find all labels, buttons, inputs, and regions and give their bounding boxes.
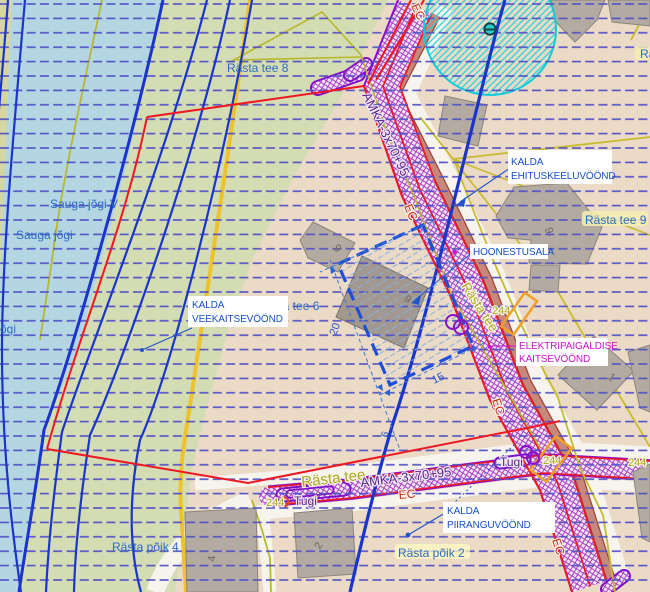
svg-text:HOONESTUSALA: HOONESTUSALA (473, 247, 554, 258)
svg-text:ELEKTRIPAIGALDISE: ELEKTRIPAIGALDISE (519, 341, 618, 352)
svg-text:PIIRANGUVÖÖND: PIIRANGUVÖÖND (447, 519, 531, 531)
svg-text:EHITUSKEELUVÖÖND: EHITUSKEELUVÖÖND (511, 170, 616, 182)
svg-text:Sauga jõgi V: Sauga jõgi V (50, 197, 118, 211)
svg-text:õgi: õgi (0, 322, 16, 336)
svg-text:KALDA: KALDA (192, 300, 225, 311)
svg-text:KALDA: KALDA (511, 157, 544, 168)
svg-text:KALDA: KALDA (447, 506, 480, 517)
svg-text:Rä: Rä (640, 47, 650, 61)
svg-text:Rästa tee 9: Rästa tee 9 (585, 213, 647, 227)
svg-text:244: 244 (266, 497, 284, 509)
svg-text:KAITSEVÖÖND: KAITSEVÖÖND (519, 353, 590, 365)
svg-text:EC: EC (398, 487, 416, 502)
svg-text:Rästa põik 2: Rästa põik 2 (398, 546, 465, 560)
svg-text:Sauga jõgi: Sauga jõgi (16, 228, 73, 242)
svg-text:9·: 9· (542, 226, 556, 238)
svg-text:Tugi: Tugi (500, 455, 523, 469)
svg-text:VEEKAITSEVÖÖND: VEEKAITSEVÖÖND (192, 313, 283, 325)
svg-text:Rästa põik 4: Rästa põik 4 (112, 540, 179, 554)
svg-text:244: 244 (628, 457, 646, 469)
svg-text:Rästa tee 8: Rästa tee 8 (227, 61, 289, 75)
svg-text:4: 4 (206, 555, 218, 562)
svg-text:Tugi: Tugi (294, 494, 317, 508)
